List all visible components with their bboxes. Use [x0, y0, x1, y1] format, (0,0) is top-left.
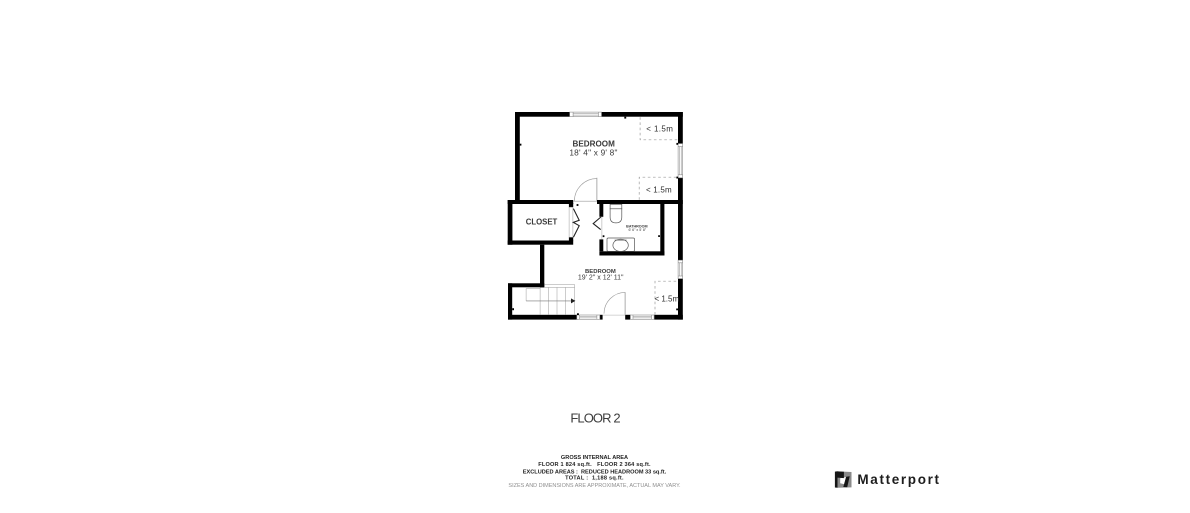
svg-text:FLOOR 1 824 sq.ft. FLOOR 2 3: FLOOR 1 824 sq.ft. FLOOR 2 364 sq.ft.	[538, 462, 651, 468]
svg-text:Matterport: Matterport	[857, 472, 940, 487]
svg-text:FLOOR 2: FLOOR 2	[570, 410, 620, 425]
svg-text:SIZES AND DIMENSIONS ARE APPRO: SIZES AND DIMENSIONS ARE APPROXIMATE, AC…	[508, 483, 681, 489]
svg-text:6' 6" x 5' 8": 6' 6" x 5' 8"	[628, 228, 646, 232]
svg-text:18' 4" x 9' 8": 18' 4" x 9' 8"	[569, 148, 617, 158]
svg-text:TOTAL : 1,188 sq.ft.: TOTAL : 1,188 sq.ft.	[565, 475, 624, 481]
svg-text:< 1.5m: < 1.5m	[654, 295, 679, 304]
svg-text:19' 2" x 12' 11": 19' 2" x 12' 11"	[578, 275, 624, 282]
svg-text:GROSS INTERNAL AREA: GROSS INTERNAL AREA	[561, 455, 628, 461]
svg-text:< 1.5m: < 1.5m	[646, 185, 672, 194]
svg-text:< 1.5m: < 1.5m	[646, 124, 673, 133]
svg-text:CLOSET: CLOSET	[526, 217, 558, 226]
